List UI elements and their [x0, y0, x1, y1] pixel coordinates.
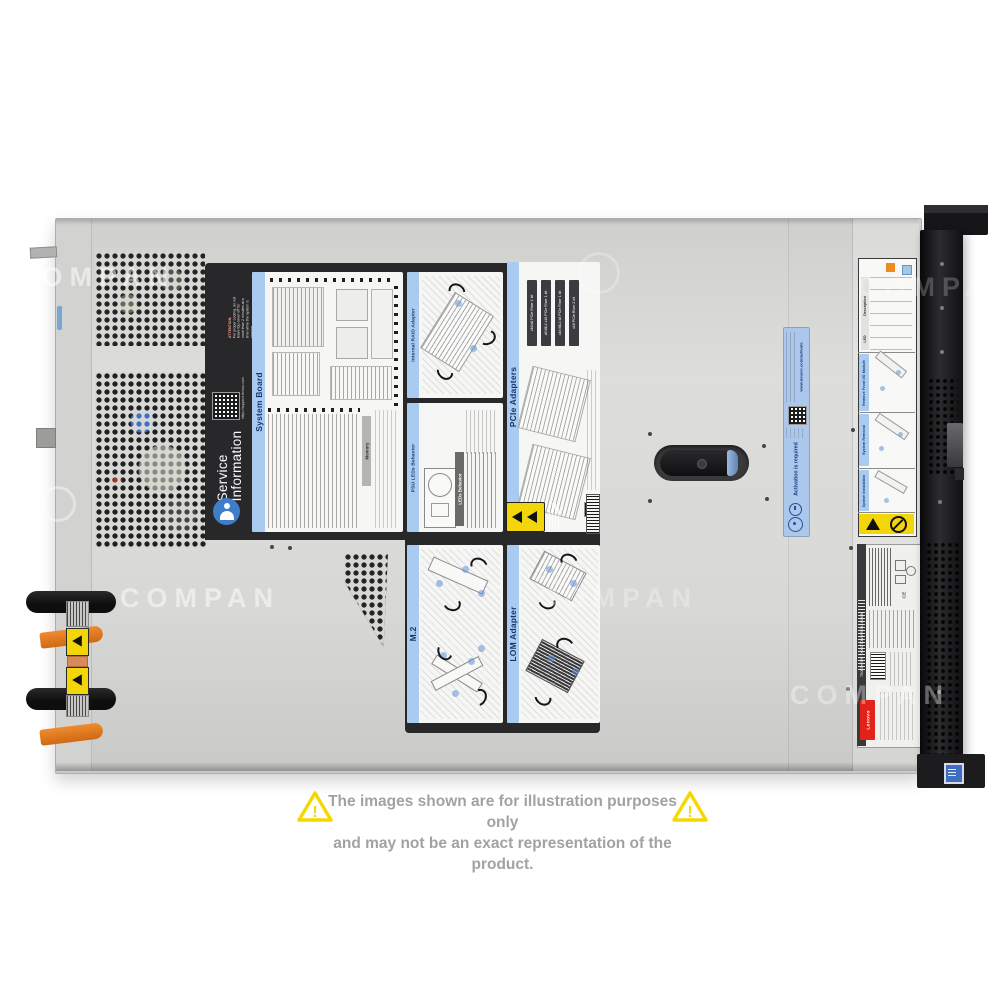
psu-drawing: [424, 468, 456, 528]
board-diagram-riser: [272, 352, 320, 396]
screw: [288, 546, 292, 550]
panel-internal-raid-titlebar: Internal RAID Adapter: [407, 272, 419, 398]
svg-text:!: !: [687, 804, 692, 821]
psu-fan-circle: [428, 473, 452, 497]
pcie-riser-bar-2: x8 ML2 x16 PCIe Riser 1 kit: [541, 280, 551, 346]
gear-icon: [788, 517, 803, 532]
front-warning-strip: [859, 514, 914, 534]
screw: [648, 432, 652, 436]
cert-mark-circle: [906, 566, 916, 576]
psu-warning-label-2: [66, 667, 89, 695]
riser-kit-label: x16 PCIe Riser 2 kit: [572, 297, 576, 329]
warning-triangle-icon: !: [671, 790, 709, 824]
svg-text:!: !: [312, 804, 317, 821]
rail-screw: [940, 262, 944, 266]
activation-title: Activation is required: [783, 438, 808, 500]
psu-orange-label: [67, 656, 88, 667]
warning-triangle-icon: [866, 518, 880, 530]
service-person-icon: [213, 498, 240, 525]
memory-section-bar: Memory: [362, 416, 371, 486]
person-head: [224, 503, 230, 509]
board-legend-bullets: [268, 408, 360, 412]
panel-title: System Board: [254, 372, 264, 432]
label-warning-caption: [549, 503, 559, 529]
callout-dot: [880, 386, 885, 391]
latch-block-top-face: [924, 205, 988, 213]
regulatory-barcode-2: [870, 652, 886, 680]
board-legend-text: [268, 414, 360, 528]
warning-triangle-icon: [72, 635, 82, 646]
warning-triangle-icon: [512, 511, 522, 523]
panel-title: PCIe Adapters: [508, 367, 518, 427]
chassis-top-edge-shade: [56, 219, 919, 225]
front-label-divider: [858, 412, 915, 413]
riser-kit-label: x8 ML2 x16 PCIe Riser 1 kit: [544, 291, 548, 336]
activation-qr-code: [788, 406, 807, 425]
panel-title: Internal RAID Adapter: [410, 308, 416, 362]
disclaimer-line1: The images shown are for illustration pu…: [320, 791, 685, 833]
panel-psu-leds-titlebar: PSU LEDs Behavior: [407, 403, 419, 532]
callout-dot: [896, 370, 901, 375]
callout-dot: [884, 498, 889, 503]
screw: [648, 499, 652, 503]
pcie-riser-bar-1: x16/x8 PCIe Riser 1 kit: [527, 280, 537, 346]
bracket-blue-sticker: [944, 763, 964, 784]
panel-lom-titlebar: LOM Adapter: [507, 545, 519, 723]
watermark-text: COMPAN: [858, 272, 1000, 303]
regulatory-fine-text: [869, 610, 915, 648]
prohibition-icon: [890, 516, 907, 533]
service-info-title: Service Information: [207, 428, 253, 504]
service-info-line2: Information: [230, 431, 244, 502]
regulatory-dense-text: [869, 548, 891, 606]
rail-screw: [940, 306, 944, 310]
pcie-riser-bar-4: x16 PCIe Riser 2 kit: [569, 280, 579, 346]
panel-title: PSU LEDs Behavior: [410, 443, 416, 492]
service-qr-code: [212, 392, 240, 420]
section-system-installation: System Installation: [859, 470, 869, 511]
callout-dot: [548, 655, 555, 662]
chassis-bottom-edge-shade: [56, 762, 919, 771]
psu-barcode-label-top: [66, 601, 89, 627]
service-info-line1: Service: [216, 431, 230, 502]
front-label-divider: [858, 512, 915, 513]
gear-hub: [793, 522, 796, 525]
callout-dot: [478, 645, 485, 652]
cover-latch-blue-accent: [727, 450, 738, 476]
led-color-swatch-orange: [886, 263, 895, 272]
product-photo-stage: ATTENTION:For proper cooling, do not lea…: [0, 0, 1000, 1000]
panel-m2-titlebar: M.2: [407, 545, 419, 723]
rail-screw: [938, 500, 942, 504]
warning-triangle-icon: [527, 511, 537, 523]
watermark-logo-circle: [40, 486, 76, 522]
board-diagram-io: [330, 366, 392, 400]
rear-vent-grid-large: [95, 372, 207, 548]
memory-section-label: Memory: [364, 443, 369, 460]
screw: [765, 497, 769, 501]
callout-dot: [898, 432, 903, 437]
screw: [762, 444, 766, 448]
callout-dot: [468, 658, 475, 665]
riser-kit-label: x16/x8 PCIe Riser 1 kit: [530, 295, 534, 332]
callout-dot: [462, 566, 469, 573]
leds-behavior-table-grid: [467, 452, 499, 528]
rail-notch: [955, 468, 964, 480]
board-diagram-cpu2: [336, 327, 368, 359]
board-callout-bullets-top: [270, 278, 390, 282]
front-label-divider: [858, 352, 915, 353]
label-barcode: [586, 494, 600, 534]
leds-behavior-bar: LEDs Behavior: [455, 452, 464, 526]
psu-barcode-label-bottom: [66, 695, 89, 717]
board-diagram-cpu1: [336, 289, 368, 321]
prohibition-slash: [893, 519, 904, 530]
vent-hole-mask: [95, 372, 207, 548]
disclaimer-warning-icon-right: !: [671, 790, 709, 824]
cover-latch-screw: [697, 459, 707, 469]
watermark-text: COMPAN: [538, 583, 698, 614]
watermark-text: COMPAN: [15, 262, 175, 293]
callout-dot: [455, 300, 462, 307]
watermark-logo-circle: [578, 252, 620, 294]
person-body: [220, 511, 234, 520]
section-remove-front-io: Remove Front I/O Module: [859, 354, 869, 411]
cert-mark-box: [895, 560, 906, 571]
callout-dot: [478, 590, 485, 597]
activation-fine-print: [786, 332, 795, 402]
rail-release-latch: [947, 423, 963, 467]
screw: [849, 546, 853, 550]
psu-leds-legend: [466, 410, 498, 454]
rail-vent-holes-lower: [926, 542, 959, 758]
front-label-divider: [858, 468, 915, 469]
rear-latch-tab-2: [36, 428, 56, 448]
sticker-lines: [948, 767, 956, 776]
board-callout-bullets-side: [394, 284, 398, 406]
panel-title: LOM Adapter: [508, 606, 518, 661]
label-warning-sticker: [506, 502, 545, 532]
disclaimer-line2: and may not be an exact representation o…: [320, 833, 685, 875]
panel-system-board-titlebar: System Board: [252, 272, 265, 532]
psu-socket: [431, 503, 449, 517]
callout-dot: [470, 345, 477, 352]
psu-warning-label-1: [66, 628, 89, 656]
board-diagram-dimm-bank: [272, 287, 324, 347]
pcie-riser-bar-3: x16 ML2 x8 PCIe Riser 1 kit: [555, 280, 565, 346]
rear-latch-tab: [30, 246, 58, 258]
activation-tiny-text: [786, 428, 804, 438]
rail-screw: [940, 350, 944, 354]
attention-body: For proper cooling, do not leave top cov…: [232, 297, 253, 338]
screw: [270, 545, 274, 549]
panel-pcie-titlebar: PCIe Adapters: [507, 262, 519, 532]
screw: [851, 428, 855, 432]
clock-hand: [794, 506, 796, 510]
rear-blue-tab: [57, 306, 62, 330]
ce-mark: CE: [898, 588, 910, 602]
watermark-text: COMPAN: [120, 583, 280, 614]
disclaimer-text: The images shown are for illustration pu…: [320, 791, 685, 875]
callout-dot: [452, 690, 459, 697]
service-qr-caption: https://support.lenovo.com: [238, 384, 248, 428]
callout-dot: [572, 668, 579, 675]
callout-dot: [879, 446, 884, 451]
section-system-removal: System Removal: [859, 414, 869, 466]
memory-section-text: [375, 410, 399, 528]
activation-url: www.lenovo.com/activate: [795, 330, 807, 404]
board-diagram-slots: [371, 289, 393, 359]
panel-title: M.2: [408, 627, 418, 642]
led-table-header-led: LED: [861, 330, 869, 348]
cert-mark-box: [895, 575, 906, 584]
callout-dot: [546, 566, 553, 573]
callout-dot: [436, 580, 443, 587]
pcie-side-text: [587, 370, 597, 490]
warning-triangle-icon: [72, 674, 82, 685]
riser-kit-label: x16 ML2 x8 PCIe Riser 1 kit: [558, 291, 562, 336]
leds-behavior-label: LEDs Behavior: [457, 473, 462, 504]
watermark-text: COMPAN: [790, 680, 950, 711]
clock-icon: [789, 503, 802, 516]
